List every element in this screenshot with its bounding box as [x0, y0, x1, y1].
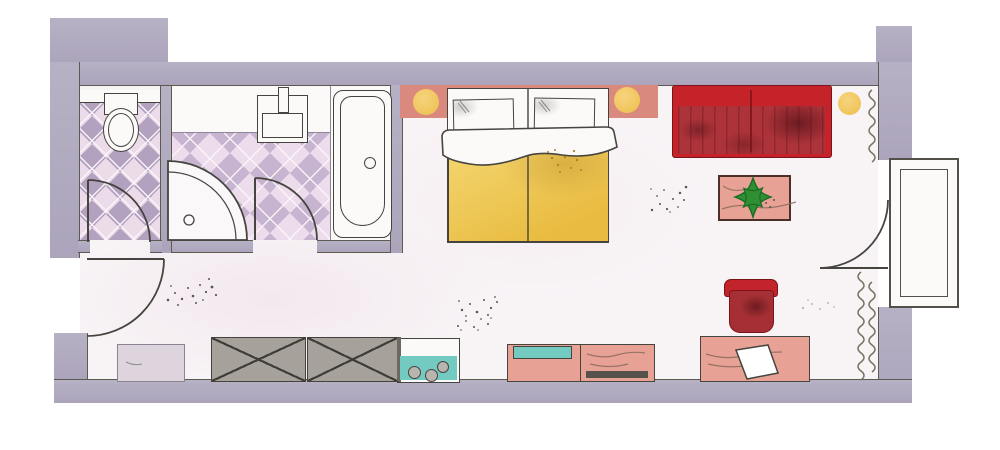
pillow-scribble-right — [539, 100, 550, 112]
speckles-center — [458, 296, 498, 317]
speckles-right-of-bed — [650, 186, 687, 213]
sideboard-squiggle — [587, 352, 645, 366]
wc-door-swing — [88, 180, 150, 242]
bench-scribble — [126, 362, 142, 365]
linework-overlay — [0, 0, 1000, 450]
corner-shower-drain — [184, 215, 194, 225]
radiator-bottom-right-a — [858, 272, 864, 380]
radiator-top-right — [869, 90, 875, 162]
desk-paper — [736, 345, 778, 379]
speckles-near-desk — [802, 299, 835, 310]
entrance-door-swing — [87, 259, 164, 336]
radiator-bottom-right-b — [869, 282, 875, 372]
bed-sheet-fold — [442, 127, 617, 165]
floor-plan — [0, 0, 1000, 450]
bathroom-door-swing — [255, 178, 317, 240]
pillow-scribble-left — [458, 101, 469, 113]
speckles-near-minibar — [457, 317, 492, 331]
speckles-entry — [167, 278, 217, 306]
balcony-door-swing — [820, 200, 888, 268]
